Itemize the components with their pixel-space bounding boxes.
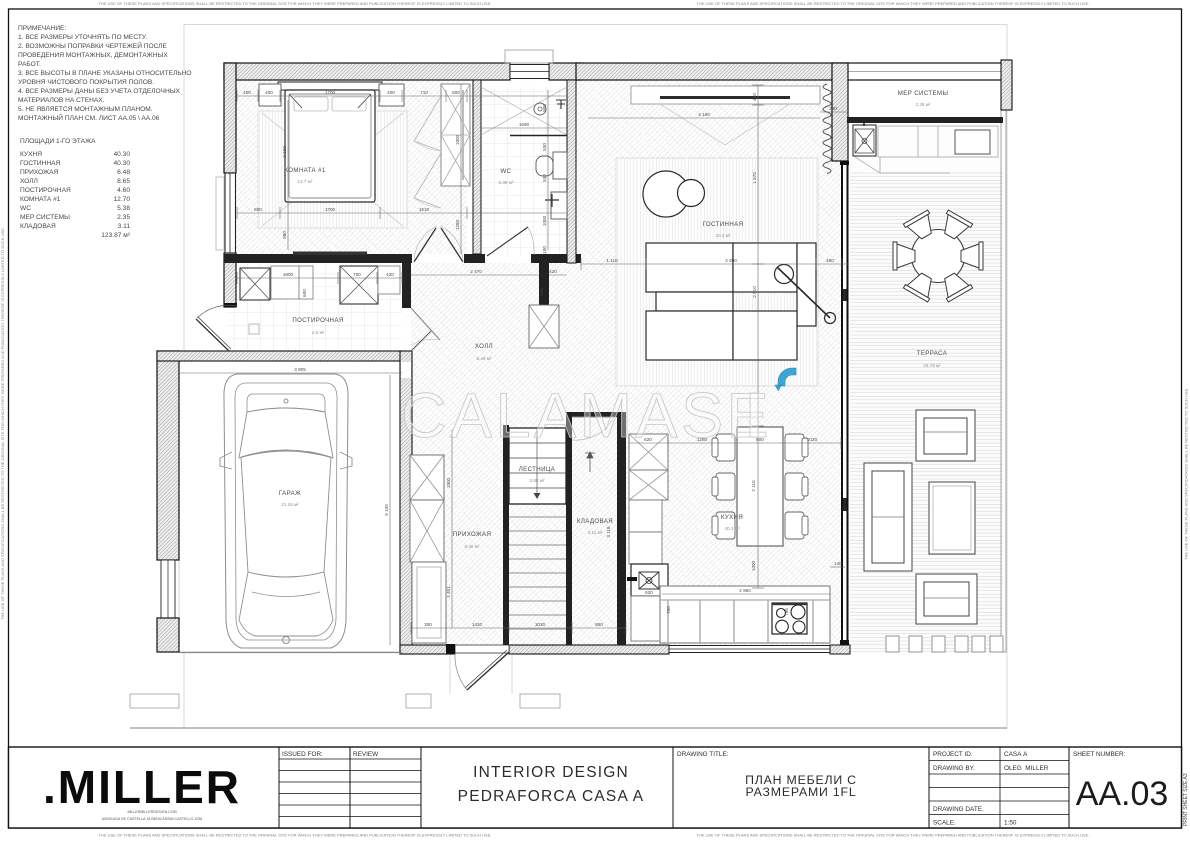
svg-text:ГОСТИННАЯ: ГОСТИННАЯ [703,221,744,228]
svg-text:3.11: 3.11 [118,223,131,230]
svg-text:420: 420 [386,272,394,277]
svg-text:ПРИМЕЧАНИЕ:: ПРИМЕЧАНИЕ: [18,25,66,32]
svg-text:ГОСТИННАЯ: ГОСТИННАЯ [20,160,61,167]
svg-text:12.70: 12.70 [113,196,130,203]
svg-text:3 905: 3 905 [294,367,306,372]
svg-text:2 100: 2 100 [282,146,287,158]
svg-text:INTERIOR DESIGN: INTERIOR DESIGN [473,764,629,781]
svg-text:3 118: 3 118 [606,526,611,538]
svg-text:AA.03: AA.03 [1076,775,1169,813]
svg-text:1020: 1020 [807,437,818,442]
svg-text:DRAWING DATE.: DRAWING DATE. [933,806,984,813]
svg-text:6.48 м²: 6.48 м² [465,544,480,549]
svg-text:КУХНЯ: КУХНЯ [20,151,42,158]
svg-text:ПРОВЕДЕНИЯ МОНТАЖНЫХ, ДЕМОНТАЖ: ПРОВЕДЕНИЯ МОНТАЖНЫХ, ДЕМОНТАЖНЫХ [18,52,168,59]
svg-text:4.6 м²: 4.6 м² [312,330,325,335]
svg-text:2 960: 2 960 [739,588,751,593]
svg-text:DRAWING BY.: DRAWING BY. [933,765,975,772]
svg-text:ПРИХОЖАЯ: ПРИХОЖАЯ [453,531,492,538]
svg-text:THE USE OF THESE PLANS AND SPE: THE USE OF THESE PLANS AND SPECIFICATION… [0,227,5,620]
svg-text:THE USE OF THESE PLANS AND SPE: THE USE OF THESE PLANS AND SPECIFICATION… [99,833,492,838]
svg-text:1 401: 1 401 [446,586,451,598]
svg-text:ПОСТИРОЧНАЯ: ПОСТИРОЧНАЯ [292,317,343,324]
svg-text:925: 925 [539,288,544,296]
svg-text:ISSUED FOR:: ISSUED FOR: [282,751,323,758]
svg-text:КОМНАТА #1: КОМНАТА #1 [20,196,61,203]
svg-text:100: 100 [542,246,547,254]
svg-text:1800: 1800 [446,477,451,488]
svg-text:РАБОТ.: РАБОТ. [18,61,41,68]
svg-text:ПЛОЩАДИ 1-ГО ЭТАЖА: ПЛОЩАДИ 1-ГО ЭТАЖА [20,138,96,145]
svg-text:1:50: 1:50 [1004,820,1017,827]
svg-text:530: 530 [542,174,547,182]
svg-text:1000: 1000 [542,215,547,226]
svg-text:1030: 1030 [535,622,546,627]
svg-text:400: 400 [243,90,251,95]
svg-text:4.60: 4.60 [117,187,130,194]
svg-text:2.35: 2.35 [117,214,130,221]
svg-text:700: 700 [666,606,671,614]
svg-text:400: 400 [752,93,757,101]
svg-text:ГАРАЖ: ГАРАЖ [279,490,301,497]
svg-text:2 470: 2 470 [470,269,482,274]
svg-text:1000: 1000 [751,560,756,571]
svg-text:CASA A: CASA A [1004,751,1028,758]
svg-text:12.7 м²: 12.7 м² [298,179,313,184]
svg-text:1 570: 1 570 [752,172,757,184]
svg-text:1 110: 1 110 [606,258,618,263]
svg-text:ПОСТИРОЧНАЯ: ПОСТИРОЧНАЯ [20,187,71,194]
svg-text:40.3 м²: 40.3 м² [716,233,731,238]
svg-text:140: 140 [834,561,842,566]
svg-text:400: 400 [387,90,395,95]
svg-text:2. ВОЗМОЖНЫ ПОПРАВКИ ЧЕРТЕЖЕЙ: 2. ВОЗМОЖНЫ ПОПРАВКИ ЧЕРТЕЖЕЙ ПОСЛЕ [18,41,168,50]
svg-text:THE USE OF THESE PLANS AND SPE: THE USE OF THESE PLANS AND SPECIFICATION… [697,1,1090,6]
svg-text:DRAWING TITLE:: DRAWING TITLE: [677,751,729,758]
svg-text:WC: WC [20,205,31,212]
svg-text:900: 900 [542,104,547,112]
svg-text:1420: 1420 [472,622,483,627]
svg-text:2 910: 2 910 [752,286,757,298]
svg-text:1280: 1280 [455,219,460,230]
svg-text:250: 250 [829,106,837,111]
svg-text:500: 500 [452,90,460,95]
svg-text:460: 460 [826,258,834,263]
svg-text:PRINT SHEET SIZE A3: PRINT SHEET SIZE A3 [1183,773,1189,826]
svg-text:4. ВСЕ РАЗМЕРЫ ДАНЫ БЕЗ УЧЕТА: 4. ВСЕ РАЗМЕРЫ ДАНЫ БЕЗ УЧЕТА ОТДЕЛОЧНЫХ [18,88,181,95]
svg-text:ТЕРРАСА: ТЕРРАСА [917,350,948,357]
svg-text:ХОЛЛ: ХОЛЛ [475,343,493,350]
svg-text:MILLERMILLERDESIGN.COM: MILLERMILLERDESIGN.COM [127,810,176,814]
svg-text:8.48 м²: 8.48 м² [477,356,492,361]
svg-text:ХОЛЛ: ХОЛЛ [20,178,38,185]
svg-text:1700: 1700 [325,207,336,212]
svg-text:5.38: 5.38 [117,205,130,212]
svg-text:THE USE OF THESE PLANS AND SPE: THE USE OF THESE PLANS AND SPECIFICATION… [697,833,1090,838]
svg-text:1. ВСЕ РАЗМЕРЫ УТОЧНЯТЬ ПО МЕС: 1. ВСЕ РАЗМЕРЫ УТОЧНЯТЬ ПО МЕСТУ. [18,34,147,41]
svg-text:5.38 м²: 5.38 м² [499,180,514,185]
svg-text:4 160: 4 160 [698,112,710,117]
svg-text:КОМНАТА #1: КОМНАТА #1 [284,167,326,174]
svg-text:WC: WC [501,168,512,175]
svg-text:40.3 м²: 40.3 м² [725,526,740,531]
svg-text:SHEET NUMBER:: SHEET NUMBER: [1073,751,1126,758]
svg-text:5 105: 5 105 [384,504,389,516]
svg-text:SCALE.: SCALE. [933,820,956,827]
svg-text:1610: 1610 [419,207,430,212]
svg-text:2.35 м²: 2.35 м² [916,102,931,107]
svg-text:40.30: 40.30 [113,160,130,167]
svg-text:300: 300 [424,622,432,627]
svg-text:РАЗМЕРАМИ 1FL: РАЗМЕРАМИ 1FL [746,785,857,799]
svg-text:710: 710 [420,90,428,95]
svg-text:600: 600 [302,289,307,297]
svg-text:THE USE OF THESE PLANS AND SPE: THE USE OF THESE PLANS AND SPECIFICATION… [99,1,492,6]
svg-text:OLEG MILLER: OLEG MILLER [1004,765,1049,772]
svg-text:AVINGUDA DE CASTELLÀ 18 BENICÀ: AVINGUDA DE CASTELLÀ 18 BENICÀSSIM CASTE… [102,816,203,821]
svg-text:21.18 м²: 21.18 м² [281,502,299,507]
svg-text:8.65: 8.65 [117,178,130,185]
svg-text:420: 420 [549,269,557,274]
svg-text:1700: 1700 [325,90,336,95]
svg-text:КЛАДОВАЯ: КЛАДОВАЯ [20,223,56,230]
svg-text:26.78 м²: 26.78 м² [923,363,941,368]
svg-text:КУХНЯ: КУХНЯ [721,514,743,521]
svg-text:620: 620 [645,590,653,595]
svg-text:THE USE OF THESE PLANS AND SPE: THE USE OF THESE PLANS AND SPECIFICATION… [1184,388,1189,560]
svg-text:400: 400 [265,90,273,95]
svg-text:40.30: 40.30 [113,151,130,158]
svg-text:123.87 м²: 123.87 м² [101,232,131,239]
svg-text:2 990: 2 990 [725,258,737,263]
svg-text:УРОВНЯ ЧИСТОВОГО ПОКРЫТИЯ ПОЛО: УРОВНЯ ЧИСТОВОГО ПОКРЫТИЯ ПОЛОВ. [18,79,154,86]
svg-text:800: 800 [254,207,262,212]
svg-text:5. НЕ ЯВЛЯЕТСЯ МОНТАЖНЫМ ПЛАНО: 5. НЕ ЯВЛЯЕТСЯ МОНТАЖНЫМ ПЛАНОМ. [18,106,153,113]
svg-text:6.48: 6.48 [117,169,130,176]
svg-text:МАТЕРИАЛОВ НА СТЕНАХ.: МАТЕРИАЛОВ НА СТЕНАХ. [18,97,105,104]
svg-text:980: 980 [282,231,287,239]
svg-text:530: 530 [542,143,547,151]
svg-text:765: 765 [784,608,789,616]
svg-text:МОНТАЖНЫЙ ПЛАН СМ. ЛИСТ AA.05: МОНТАЖНЫЙ ПЛАН СМ. ЛИСТ AA.05 \ AA.06 [18,113,160,122]
svg-text:REVIEW: REVIEW [353,751,379,758]
svg-text:3.11 м²: 3.11 м² [588,530,603,535]
svg-text:ЛЕСТНИЦА: ЛЕСТНИЦА [519,466,556,473]
svg-text:ПРИХОЖАЯ: ПРИХОЖАЯ [20,169,59,176]
svg-text:700: 700 [353,272,361,277]
svg-text:1590: 1590 [519,122,530,127]
svg-text:МЕР СИСТЕМЫ: МЕР СИСТЕМЫ [898,90,949,97]
svg-text:2 110: 2 110 [751,480,756,492]
svg-text:CALAMASE: CALAMASE [401,381,772,451]
svg-text:1800: 1800 [283,272,294,277]
svg-text:850: 850 [595,622,603,627]
svg-text:.MILLER: .MILLER [43,761,241,813]
svg-text:PEDRAFORCA CASA A: PEDRAFORCA CASA A [458,788,645,805]
svg-text:МЕР СИСТЕМЫ: МЕР СИСТЕМЫ [20,214,70,221]
svg-text:КЛАДОВАЯ: КЛАДОВАЯ [577,518,613,525]
svg-text:1800: 1800 [455,134,460,145]
svg-text:3.88 м²: 3.88 м² [530,478,545,483]
svg-text:PROJECT ID.: PROJECT ID. [933,751,973,758]
svg-text:3. ВСЕ ВЫСОТЫ В ПЛАНЕ УКАЗАНЫ: 3. ВСЕ ВЫСОТЫ В ПЛАНЕ УКАЗАНЫ ОТНОСИТЕЛЬ… [18,70,192,77]
